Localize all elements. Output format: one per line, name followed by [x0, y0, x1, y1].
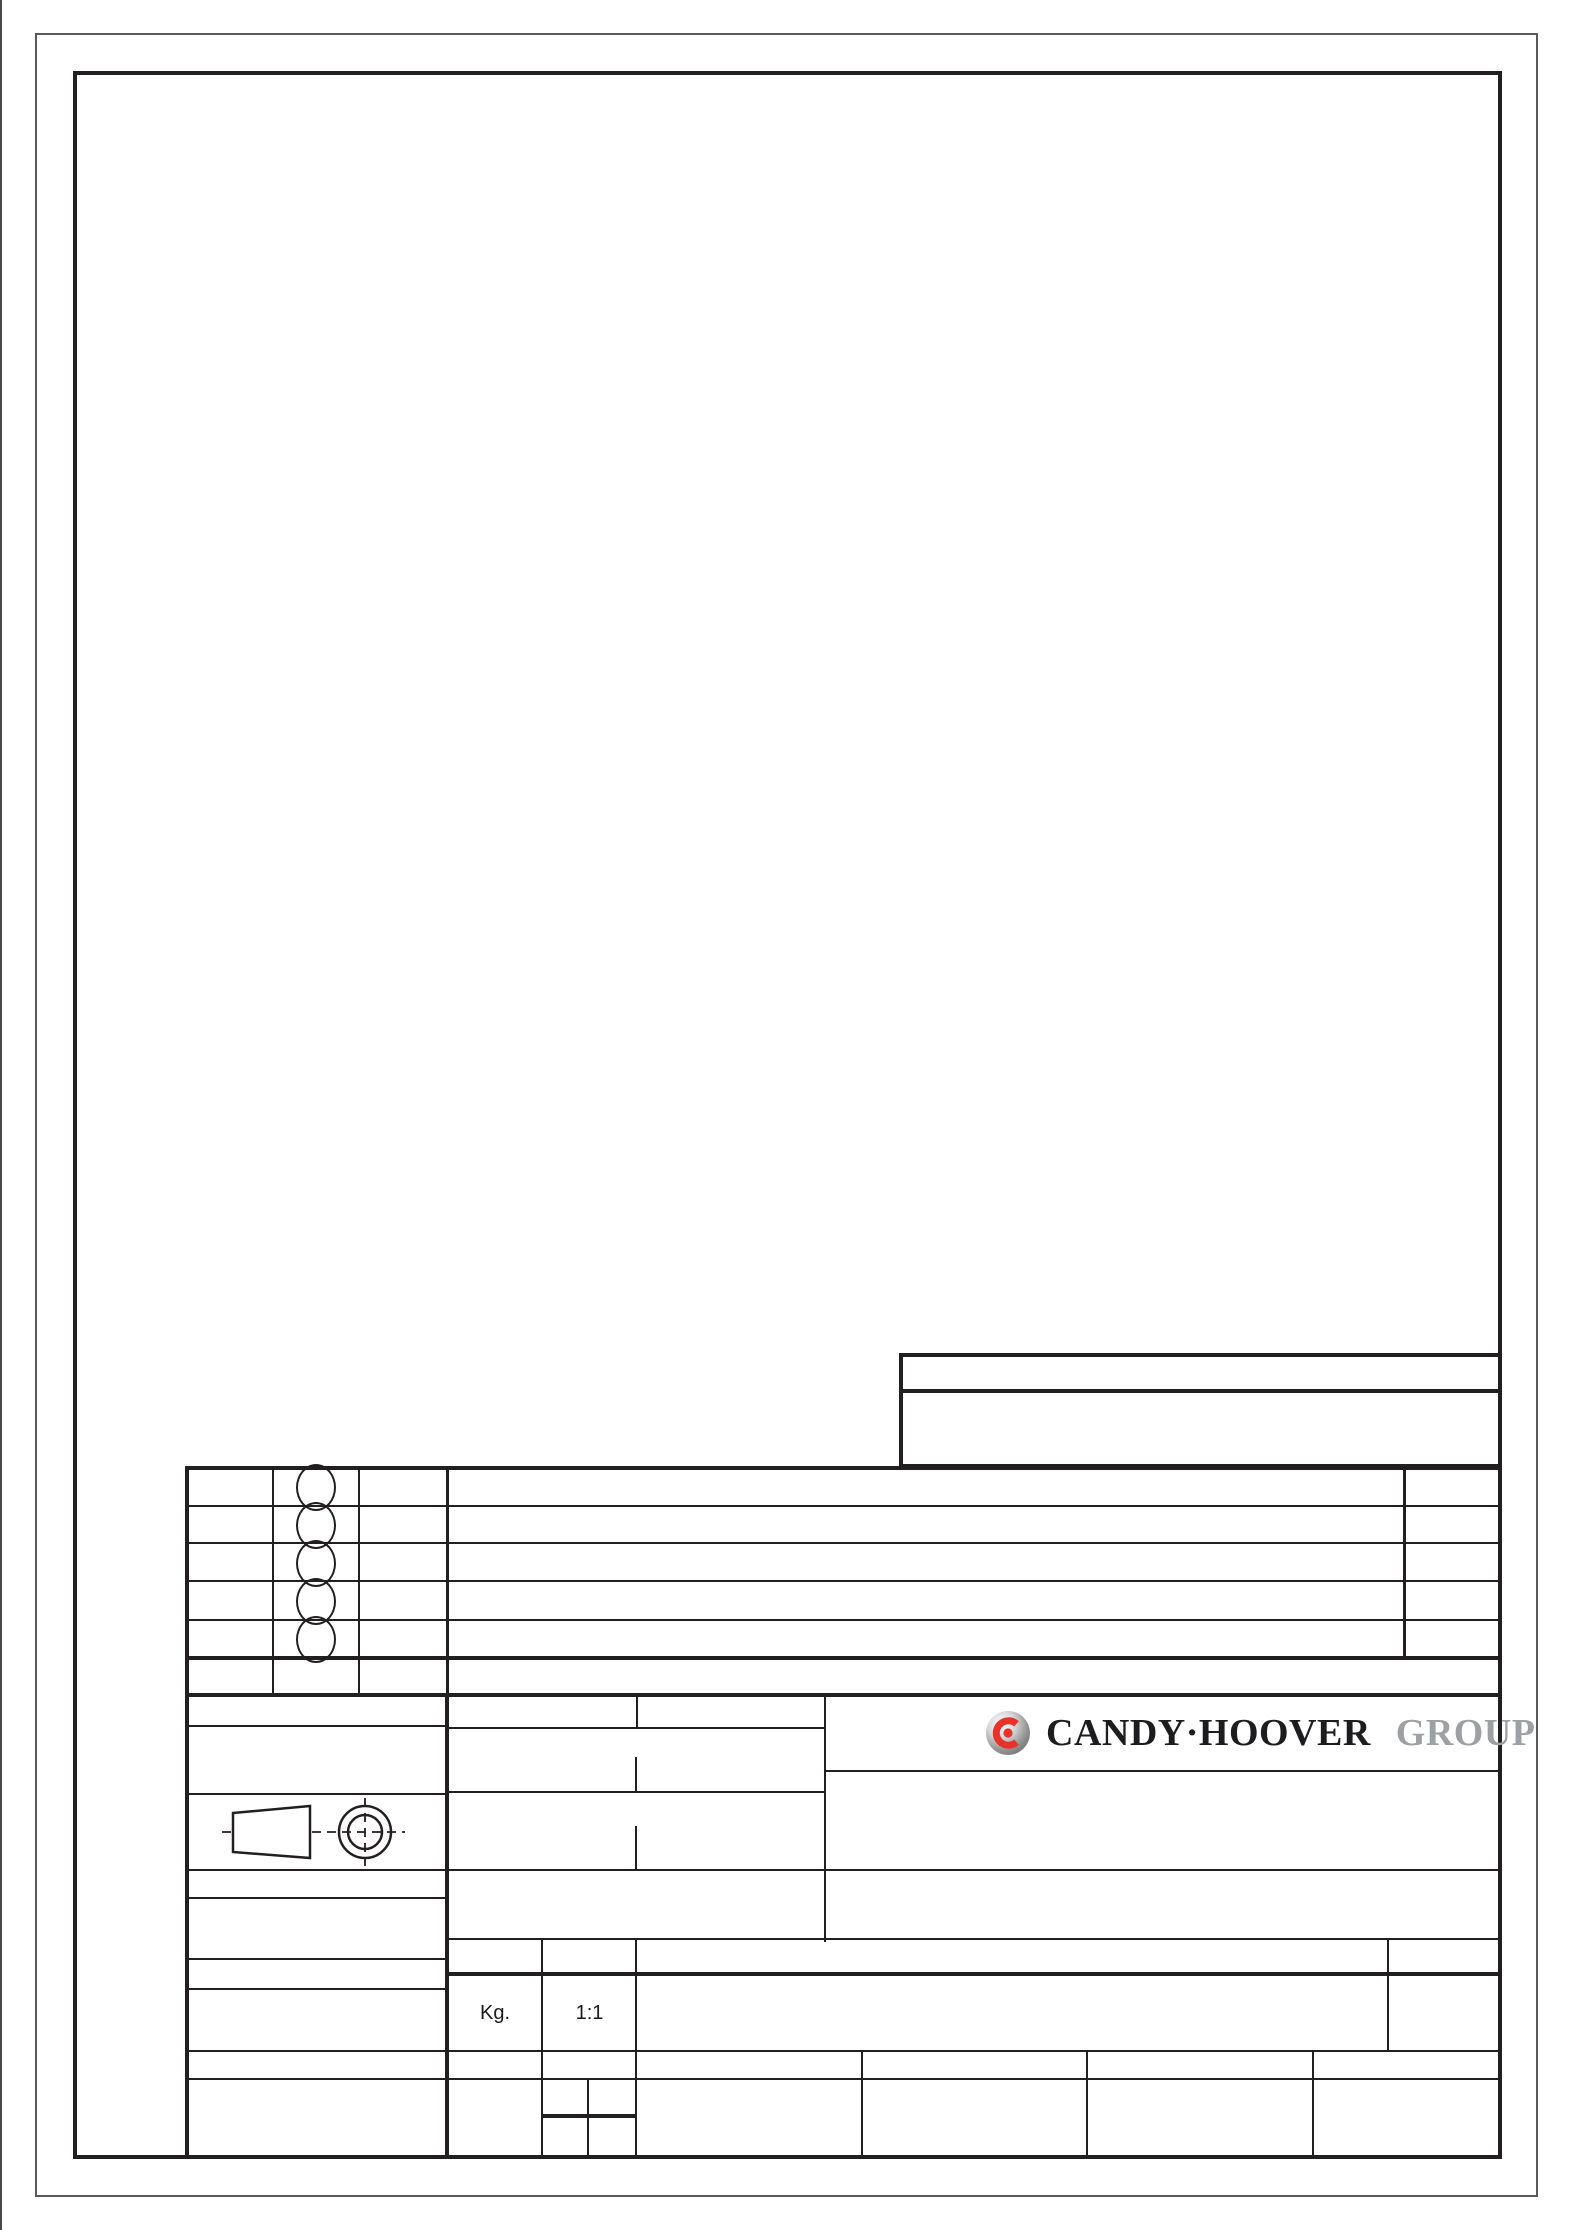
sheet-counter-thick-line — [542, 2114, 637, 2118]
brand-name: CANDY·HOOVER — [1046, 1711, 1371, 1755]
first-angle-projection-icon — [185, 1793, 448, 1873]
title-block-section-divider — [824, 1697, 826, 1942]
signature-column-line — [1312, 2050, 1314, 2159]
sheet-counter-line — [587, 2078, 589, 2159]
info-row-line — [189, 2050, 1502, 2052]
info-row-line — [189, 1958, 445, 1960]
revision-column-line — [358, 1466, 360, 1697]
info-row-line — [189, 1988, 445, 1990]
title-block-line — [1387, 1938, 1389, 2052]
revision-right-column-line — [1403, 1466, 1406, 1660]
revision-table-thick-line — [185, 1656, 1502, 1660]
brand-suffix: GROUP — [1396, 1711, 1536, 1755]
info-row-line — [189, 1897, 445, 1899]
brand-logo: CANDY·HOOVER GROUP — [985, 1697, 1485, 1769]
title-block-left-edge — [445, 1693, 449, 2159]
title-block-line — [448, 1938, 1502, 1940]
revision-row-line — [187, 1542, 1500, 1544]
title-block-line — [636, 1697, 638, 1729]
candy-c-logo-icon — [985, 1710, 1031, 1756]
scale-value: 1:1 — [543, 1976, 636, 2050]
logo-cell-bottom-line — [825, 1770, 1502, 1772]
revision-balloon — [296, 1616, 336, 1663]
signature-column-line — [861, 2050, 863, 2159]
part-number-box-divider — [899, 1389, 1502, 1393]
half-divider-tick — [635, 1757, 637, 1793]
info-row-line — [189, 1725, 445, 1727]
signature-column-line — [1086, 2050, 1088, 2159]
part-number-box — [899, 1353, 1502, 1468]
revision-column-line — [446, 1466, 449, 1697]
scan-edge-line — [0, 0, 2, 2230]
revision-table-top-line — [185, 1466, 1502, 1470]
revision-row-line — [187, 1580, 1500, 1582]
revision-row-line — [187, 1619, 1500, 1621]
info-row-line — [189, 2078, 1502, 2080]
drawing-sheet: Kg. 1:1 CANDY·HOOVER GROUP — [0, 0, 1576, 2230]
weight-unit-label: Kg. — [448, 1976, 542, 2050]
half-divider-tick — [635, 1826, 637, 1870]
revision-column-line — [272, 1466, 274, 1697]
revision-row-line — [187, 1505, 1500, 1507]
